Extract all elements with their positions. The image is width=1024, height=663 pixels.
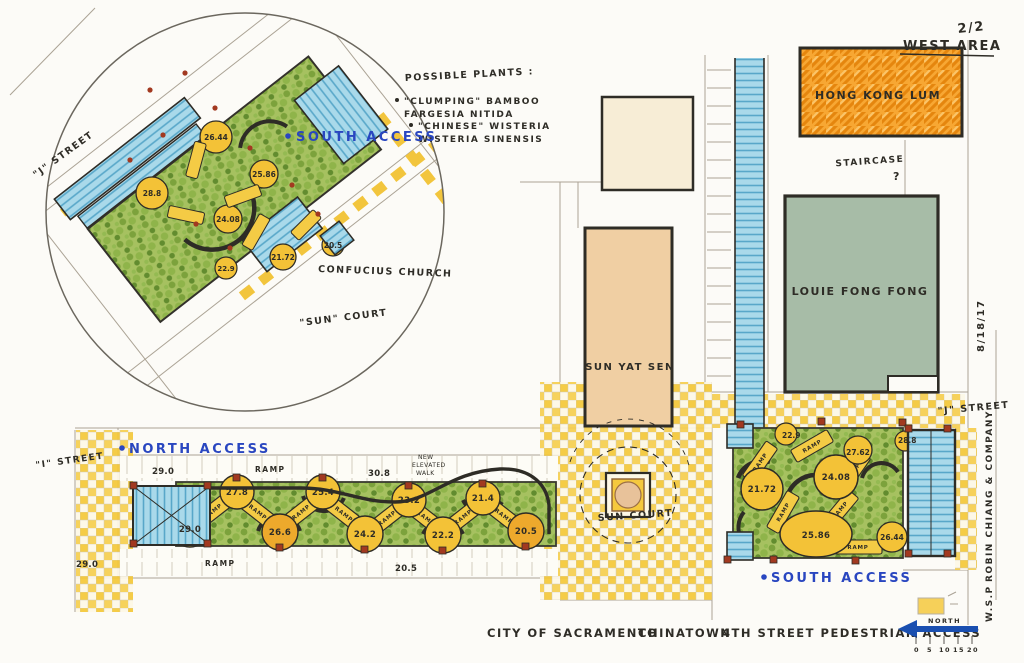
- inset-elev-f: 22.9: [217, 265, 234, 273]
- elev-east-c: 24.08: [822, 473, 850, 483]
- elevated-note-3: WALK: [416, 470, 435, 477]
- scale-10: 10: [939, 646, 951, 654]
- title-part-1: CITY OF SACRAMENTO: [487, 626, 658, 640]
- elevated-note-1: NEW: [418, 454, 433, 461]
- firm-name: ROBIN CHIANG & COMPANY: [985, 410, 995, 582]
- staircase-note: STAIRCASE: [835, 155, 904, 170]
- elev-east-e: 27.62: [846, 448, 870, 457]
- plant-notes-heading: POSSIBLE PLANTS :: [405, 66, 535, 84]
- scale-15: 15: [953, 646, 965, 654]
- scale-20: 20: [967, 646, 979, 654]
- sun-court-inset-label: "SUN" COURT: [299, 307, 388, 329]
- inset-elev-g: 20.5: [324, 241, 343, 250]
- building-sun-yat-sen: [585, 228, 672, 426]
- sheet-date: 8/18/17: [976, 299, 987, 352]
- elev-east-ne: 28.8: [898, 436, 917, 445]
- site-plan-sheet: RAMP RAMP RAMP RAMP RAMP RAMP RAMP RAMP: [0, 0, 1024, 663]
- inset-elev-a: 26.44: [204, 133, 228, 142]
- elev-east-se: 26.44: [880, 533, 904, 542]
- south-access-inset-label: SOUTH ACCESS: [296, 130, 437, 145]
- scale-0: 0: [914, 646, 920, 654]
- elev-lower-walk: 20.5: [395, 564, 417, 574]
- elev-east-s: 25.86: [802, 531, 830, 541]
- firm-wsp: W.S.P: [985, 585, 995, 622]
- elev-upper-walk: 30.8: [368, 469, 390, 479]
- elev-bot-5: 20.5: [515, 527, 537, 537]
- south-access-east-label: SOUTH ACCESS: [771, 571, 912, 586]
- ramp-upper-walk: RAMP: [255, 465, 286, 474]
- inset-elev-b: 25.86: [252, 170, 276, 179]
- louie-fong-fong-label: LOUIE FONG FONG: [792, 285, 929, 298]
- elev-east-nw: 22.9: [782, 431, 801, 440]
- j-street-west-label: "J" STREET: [31, 129, 96, 180]
- staircase-question-mark: ?: [893, 170, 901, 183]
- north-label: NORTH: [928, 617, 961, 625]
- elev-top-2: 25.4: [312, 488, 334, 498]
- inset-elev-e: 21.72: [271, 253, 295, 262]
- north-access-label: NORTH ACCESS: [129, 442, 271, 457]
- elevated-note-2: ELEVATED: [412, 462, 446, 469]
- elev-bot-1: 29.0: [179, 525, 201, 535]
- title-part-2: CHINATOWN: [638, 626, 731, 640]
- scale-5: 5: [927, 646, 933, 654]
- confucius-church-label: CONFUCIUS CHURCH: [318, 264, 453, 280]
- plant-note-line-1: "CLUMPING" BAMBOO: [404, 97, 540, 107]
- paving-detail-sketch: [918, 598, 944, 614]
- building-unnamed-cream: [602, 97, 693, 190]
- elev-bot-4: 22.2: [432, 531, 454, 541]
- title-block: CITY OF SACRAMENTO CHINATOWN 4TH STREET …: [487, 592, 981, 654]
- inset-elev-d: 24.08: [216, 215, 240, 224]
- elev-top-1: 27.8: [226, 488, 248, 498]
- ramp-label: RAMP: [847, 545, 868, 551]
- elev-bot-3: 24.2: [354, 530, 376, 540]
- elev-walk-start: 29.0: [152, 467, 174, 477]
- hong-kong-lum-label: HONG KONG LUM: [815, 89, 941, 102]
- area-title: WEST AREA: [903, 39, 1002, 54]
- fourth-street-stair-strip: [735, 58, 764, 428]
- plan-drawing: RAMP RAMP RAMP RAMP RAMP RAMP RAMP RAMP: [0, 0, 1024, 663]
- inset-elev-c: 28.8: [143, 189, 162, 198]
- elev-bot-2: 26.6: [269, 528, 291, 538]
- inset-detail-vignette: [0, 0, 515, 452]
- west-garden-strip: RAMP RAMP RAMP RAMP RAMP RAMP RAMP RAMP: [120, 456, 558, 576]
- elev-top-3: 23.2: [398, 496, 420, 506]
- elev-top-4: 21.4: [472, 494, 494, 504]
- ramp-lower-walk: RAMP: [205, 559, 236, 568]
- elev-east-w: 21.72: [748, 485, 776, 495]
- sun-yat-sen-label: SUN YAT SEN: [585, 362, 675, 373]
- page-number: 2/2: [957, 19, 986, 37]
- plant-note-line-2: FARGESIA NITIDA: [404, 110, 514, 120]
- plant-note-line-3: "CHINESE" WISTERIA: [418, 122, 551, 132]
- elev-corner: 29.0: [76, 560, 98, 570]
